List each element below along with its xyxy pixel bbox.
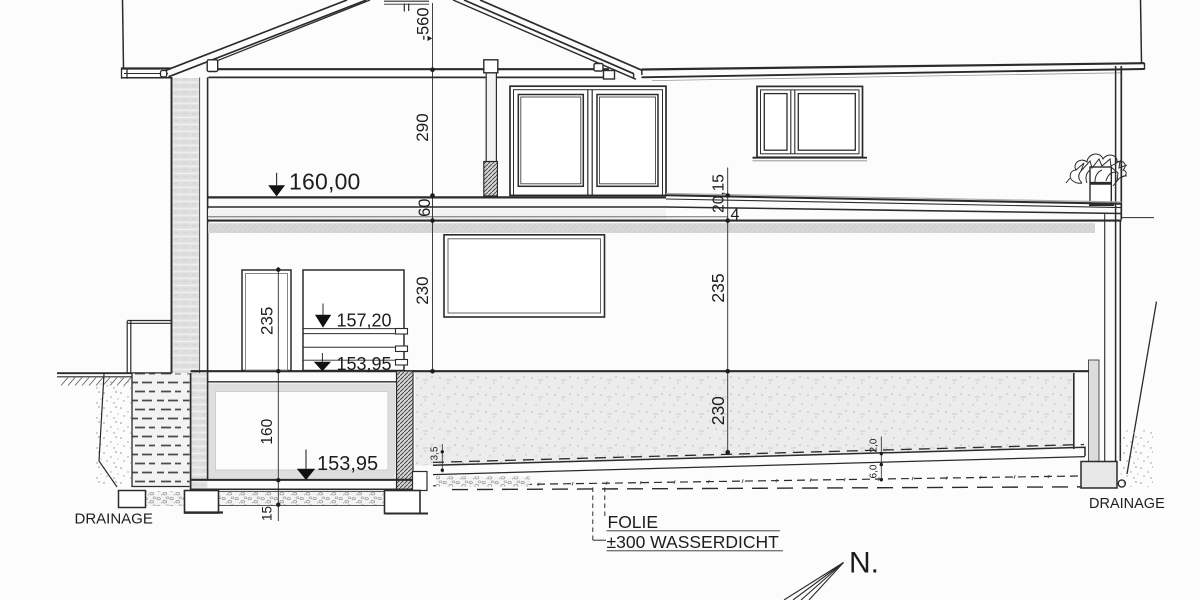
svg-text:DRAINAGE: DRAINAGE [75,511,153,528]
svg-text:N.: N. [849,547,879,580]
svg-text:230: 230 [708,396,728,425]
svg-text:15: 15 [259,506,274,521]
svg-text:20,15: 20,15 [710,174,727,213]
svg-text:157,20: 157,20 [337,311,392,331]
svg-text:±300 WASSERDICHT: ±300 WASSERDICHT [607,532,780,552]
svg-text:290: 290 [413,113,432,141]
svg-text:160: 160 [259,418,276,444]
svg-text:2,0: 2,0 [869,438,880,452]
svg-text:4: 4 [731,207,740,224]
svg-text:235: 235 [708,273,728,302]
svg-text:153,95: 153,95 [317,453,378,475]
svg-text:235: 235 [257,307,276,335]
svg-text:DRAINAGE: DRAINAGE [1089,496,1165,512]
svg-text:-560: -560 [414,7,432,40]
svg-text:FOLIE: FOLIE [608,512,659,532]
svg-text:153,95: 153,95 [337,354,392,374]
svg-text:230: 230 [413,276,432,304]
svg-text:6,0: 6,0 [869,464,880,478]
svg-text:3,5: 3,5 [429,446,440,460]
svg-text:160,00: 160,00 [289,169,361,195]
svg-text:60: 60 [416,199,434,217]
